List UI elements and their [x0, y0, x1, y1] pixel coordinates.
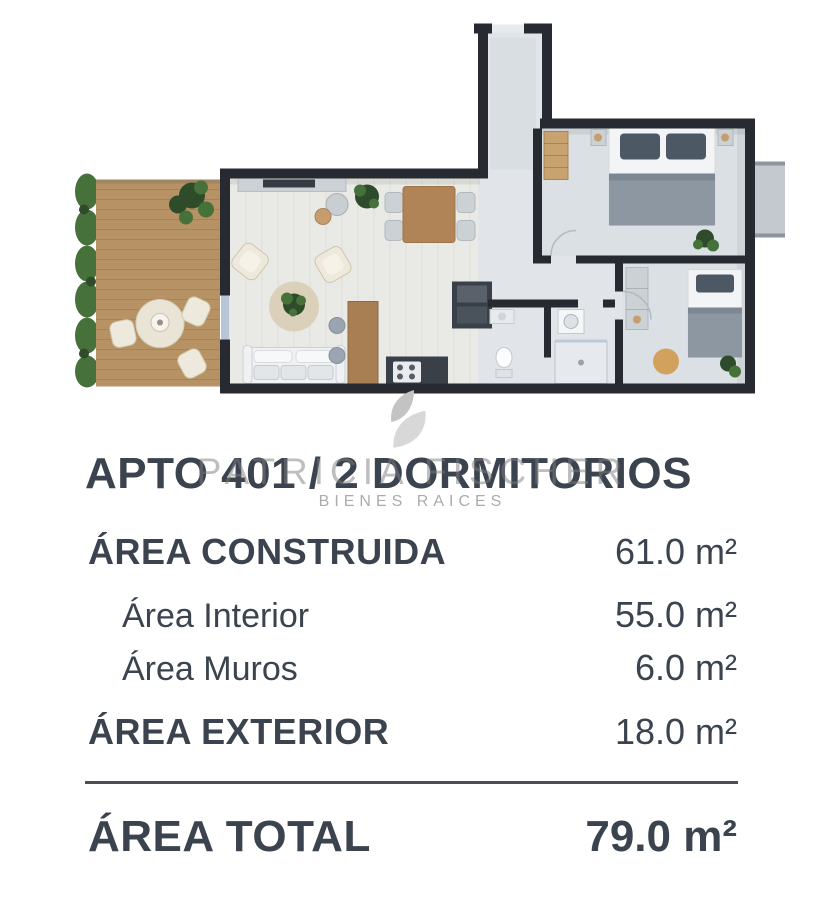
terrace — [75, 174, 220, 388]
area-construida-label: ÁREA CONSTRUIDA — [88, 531, 446, 573]
entry-door — [492, 25, 524, 33]
area-muros-label: Área Muros — [122, 650, 298, 689]
stool — [315, 209, 331, 225]
total-divider — [85, 781, 738, 784]
stove — [393, 362, 421, 383]
round-rug — [653, 349, 679, 375]
exterior-ledge — [755, 162, 785, 238]
area-exterior-label: ÁREA EXTERIOR — [88, 711, 389, 753]
single-bed — [688, 270, 742, 358]
area-muros-row: Área Muros 6.0 m² — [88, 647, 737, 689]
floor-plan-drawing — [60, 22, 790, 420]
tv — [263, 180, 315, 188]
area-total-row: ÁREA TOTAL 79.0 m² — [88, 812, 737, 862]
area-muros-value: 6.0 m² — [635, 647, 737, 689]
area-total-value: 79.0 m² — [585, 812, 737, 862]
area-construida-value: 61.0 m² — [615, 531, 737, 573]
bar-stool — [329, 318, 345, 334]
area-interior-row: Área Interior 55.0 m² — [88, 594, 737, 636]
flyer-page: PATRICIA FISCHER BIENES RAICES APTO 401 … — [0, 0, 825, 900]
toilet — [496, 348, 512, 368]
area-interior-value: 55.0 m² — [615, 594, 737, 636]
apartment-title: APTO 401 / 2 DORMITORIOS — [85, 449, 692, 499]
area-total-label: ÁREA TOTAL — [88, 812, 371, 862]
floor-plan — [60, 22, 790, 420]
kitchen-island — [348, 302, 378, 386]
terrace-glass-door — [221, 296, 229, 340]
terrace-chair — [109, 318, 138, 348]
area-exterior-row: ÁREA EXTERIOR 18.0 m² — [88, 711, 737, 753]
double-bed — [609, 128, 715, 226]
area-exterior-value: 18.0 m² — [615, 711, 737, 753]
area-interior-label: Área Interior — [122, 597, 309, 636]
bar-stool — [329, 348, 345, 364]
area-construida-row: ÁREA CONSTRUIDA 61.0 m² — [88, 531, 737, 573]
